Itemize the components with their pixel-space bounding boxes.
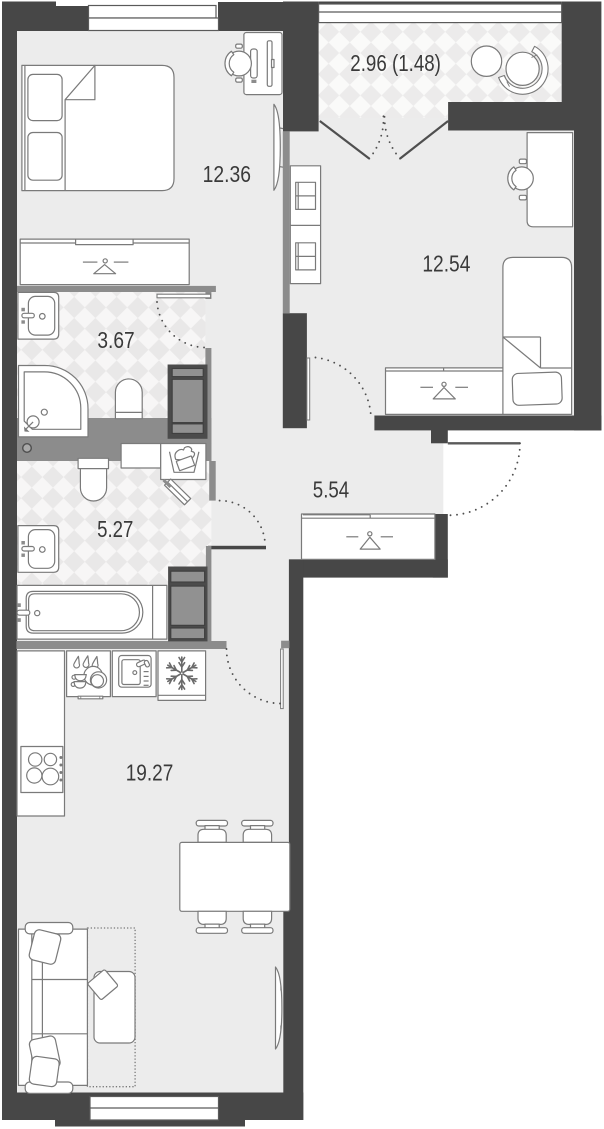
svg-text:5.27: 5.27 [97,516,133,542]
svg-text:3.67: 3.67 [97,327,134,353]
svg-text:12.36: 12.36 [203,161,251,187]
svg-text:5.54: 5.54 [313,477,350,503]
svg-text:12.54: 12.54 [422,251,470,277]
svg-text:19.27: 19.27 [126,760,174,786]
svg-text:2.96 (1.48): 2.96 (1.48) [350,50,441,76]
